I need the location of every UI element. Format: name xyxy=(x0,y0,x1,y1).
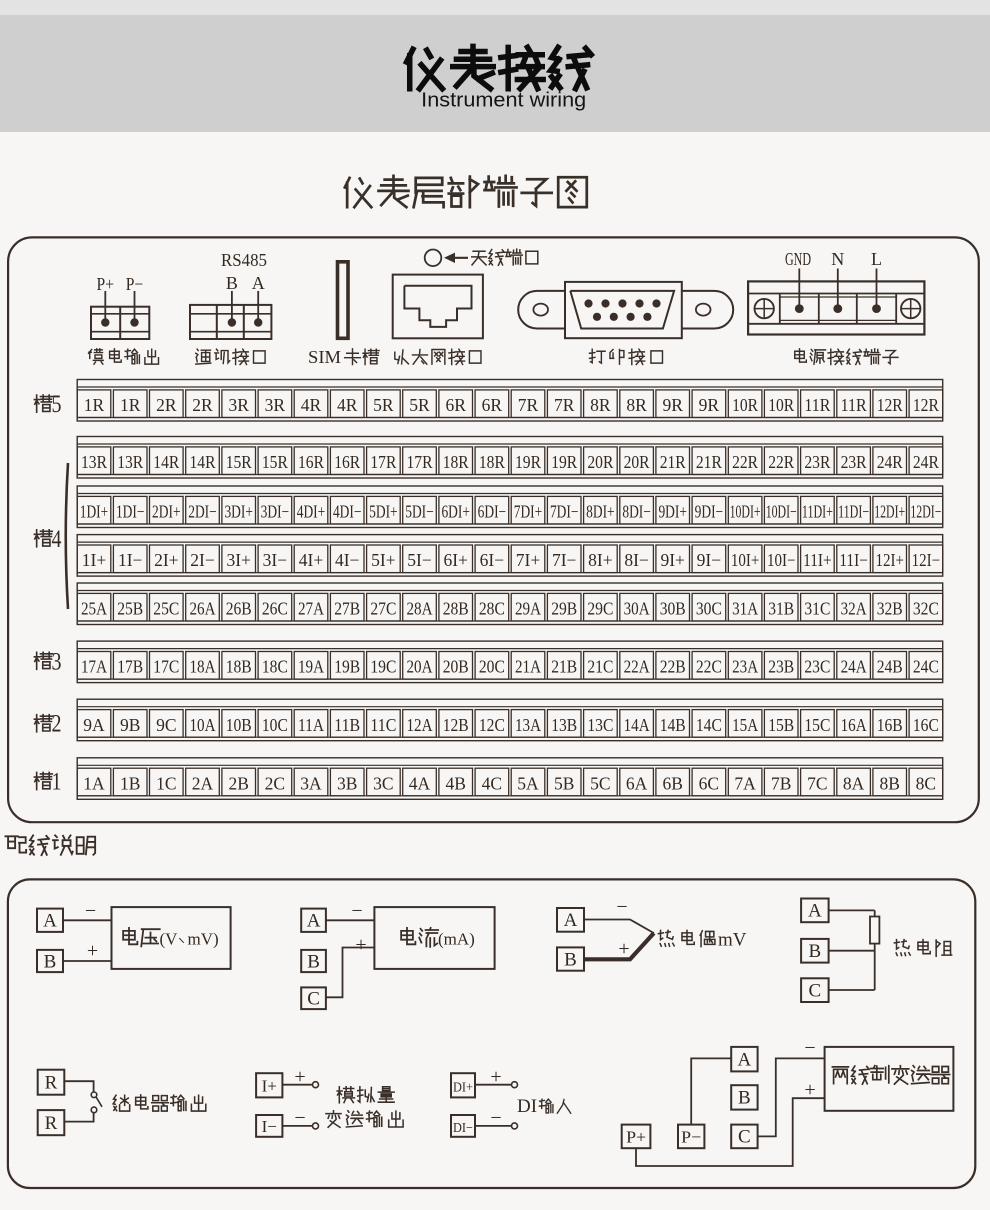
svg-text:9DI−: 9DI− xyxy=(695,502,724,522)
svg-text:23R: 23R xyxy=(804,452,830,472)
svg-text:20A: 20A xyxy=(407,657,433,677)
svg-text:3DI+: 3DI+ xyxy=(224,502,253,522)
svg-text:16A: 16A xyxy=(841,715,867,735)
svg-text:5R: 5R xyxy=(409,395,430,415)
svg-text:11DI−: 11DI− xyxy=(838,502,869,522)
svg-text:4DI+: 4DI+ xyxy=(297,502,326,522)
svg-text:23R: 23R xyxy=(841,452,867,472)
svg-text:P−: P− xyxy=(126,274,144,294)
svg-text:24A: 24A xyxy=(841,657,867,677)
svg-text:13R: 13R xyxy=(81,452,107,472)
svg-text:5: 5 xyxy=(52,391,62,418)
svg-text:17R: 17R xyxy=(370,452,396,472)
svg-text:−: − xyxy=(490,1107,501,1129)
svg-text:29C: 29C xyxy=(587,599,613,619)
svg-text:8C: 8C xyxy=(916,773,936,793)
svg-text:12DI+: 12DI+ xyxy=(874,502,905,522)
svg-text:14R: 14R xyxy=(153,452,179,472)
svg-text:1I+: 1I+ xyxy=(82,550,107,570)
svg-text:30C: 30C xyxy=(696,599,722,619)
svg-text:3I+: 3I+ xyxy=(226,550,251,570)
svg-text:10DI+: 10DI+ xyxy=(730,502,761,522)
svg-text:24C: 24C xyxy=(913,657,939,677)
svg-text:7I−: 7I− xyxy=(552,550,577,570)
svg-text:27A: 27A xyxy=(298,599,324,619)
svg-text:DI+: DI+ xyxy=(453,1081,473,1096)
svg-text:2DI−: 2DI− xyxy=(188,502,217,522)
svg-text:11I+: 11I+ xyxy=(803,550,832,570)
svg-text:(V: (V xyxy=(160,930,179,949)
svg-text:1R: 1R xyxy=(120,395,141,415)
svg-text:DI: DI xyxy=(517,1096,537,1117)
svg-text:7DI+: 7DI+ xyxy=(514,502,543,522)
svg-text:24B: 24B xyxy=(877,657,903,677)
svg-text:26A: 26A xyxy=(190,599,216,619)
svg-text:12I−: 12I− xyxy=(912,550,941,570)
svg-text:32C: 32C xyxy=(913,599,939,619)
svg-text:13B: 13B xyxy=(551,715,577,735)
svg-text:6DI−: 6DI− xyxy=(478,502,507,522)
svg-text:20R: 20R xyxy=(587,452,613,472)
svg-text:RS485: RS485 xyxy=(221,250,267,270)
svg-text:3R: 3R xyxy=(265,395,286,415)
svg-text:1DI+: 1DI+ xyxy=(80,502,109,522)
svg-text:25A: 25A xyxy=(81,599,107,619)
svg-text:32A: 32A xyxy=(841,599,867,619)
svg-text:31B: 31B xyxy=(768,599,794,619)
svg-text:9R: 9R xyxy=(699,395,720,415)
svg-text:11A: 11A xyxy=(298,715,324,735)
svg-text:3: 3 xyxy=(52,648,62,675)
svg-text:DI−: DI− xyxy=(453,1121,473,1136)
svg-text:19R: 19R xyxy=(551,452,577,472)
svg-text:27B: 27B xyxy=(334,599,360,619)
svg-text:22R: 22R xyxy=(732,452,758,472)
svg-text:3R: 3R xyxy=(228,395,249,415)
svg-text:15R: 15R xyxy=(262,452,288,472)
svg-text:6A: 6A xyxy=(626,773,648,793)
svg-text:8R: 8R xyxy=(590,395,611,415)
svg-text:24R: 24R xyxy=(877,452,903,472)
svg-text:6R: 6R xyxy=(482,395,503,415)
svg-text:N: N xyxy=(831,249,844,269)
svg-text:mV: mV xyxy=(718,930,747,951)
svg-text:5DI+: 5DI+ xyxy=(369,502,398,522)
svg-text:10R: 10R xyxy=(768,395,794,415)
svg-text:B: B xyxy=(738,1088,751,1109)
svg-text:6R: 6R xyxy=(445,395,466,415)
svg-text:22C: 22C xyxy=(696,657,722,677)
svg-text:19B: 19B xyxy=(334,657,360,677)
svg-text:25B: 25B xyxy=(117,599,143,619)
svg-text:2R: 2R xyxy=(156,395,177,415)
svg-text:16B: 16B xyxy=(877,715,903,735)
svg-text:17C: 17C xyxy=(153,657,179,677)
svg-text:5DI−: 5DI− xyxy=(405,502,434,522)
svg-text:20B: 20B xyxy=(443,657,469,677)
svg-text:Instrument wiring: Instrument wiring xyxy=(421,89,586,112)
svg-text:10I−: 10I− xyxy=(767,550,796,570)
svg-text:12I+: 12I+ xyxy=(875,550,904,570)
svg-text:21R: 21R xyxy=(696,452,722,472)
svg-text:21C: 21C xyxy=(587,657,613,677)
svg-text:9C: 9C xyxy=(156,715,176,735)
svg-text:(mA): (mA) xyxy=(438,930,475,949)
svg-text:B: B xyxy=(226,273,238,293)
svg-text:C: C xyxy=(809,980,822,1001)
svg-text:11R: 11R xyxy=(804,395,830,415)
svg-text:18A: 18A xyxy=(190,657,216,677)
svg-text:24R: 24R xyxy=(913,452,939,472)
svg-text:C: C xyxy=(738,1127,751,1148)
svg-text:11DI+: 11DI+ xyxy=(802,502,833,522)
svg-text:9I+: 9I+ xyxy=(660,550,685,570)
svg-text:12R: 12R xyxy=(877,395,903,415)
svg-text:8I−: 8I− xyxy=(624,550,649,570)
svg-text:8A: 8A xyxy=(843,773,865,793)
svg-text:+: + xyxy=(355,934,366,956)
svg-text:13C: 13C xyxy=(587,715,613,735)
svg-text:−: − xyxy=(804,1037,815,1059)
svg-text:B: B xyxy=(44,951,57,972)
svg-text:5I−: 5I− xyxy=(407,550,432,570)
svg-text:15A: 15A xyxy=(732,715,758,735)
svg-text:+: + xyxy=(618,938,629,960)
svg-text:6C: 6C xyxy=(699,773,719,793)
svg-text:23C: 23C xyxy=(804,657,830,677)
svg-text:8DI−: 8DI− xyxy=(622,502,651,522)
svg-text:27C: 27C xyxy=(370,599,396,619)
svg-text:C: C xyxy=(307,989,320,1010)
svg-text:18R: 18R xyxy=(479,452,505,472)
svg-text:I+: I+ xyxy=(262,1077,277,1096)
svg-text:17A: 17A xyxy=(81,657,107,677)
svg-text:4: 4 xyxy=(52,526,62,553)
svg-text:31A: 31A xyxy=(732,599,758,619)
svg-text:22B: 22B xyxy=(660,657,686,677)
svg-text:28A: 28A xyxy=(407,599,433,619)
svg-text:7A: 7A xyxy=(734,773,756,793)
svg-text:5I+: 5I+ xyxy=(371,550,396,570)
svg-text:21R: 21R xyxy=(660,452,686,472)
svg-text:4C: 4C xyxy=(482,773,502,793)
svg-text:9A: 9A xyxy=(83,715,105,735)
svg-text:4DI−: 4DI− xyxy=(333,502,362,522)
svg-text:2DI+: 2DI+ xyxy=(152,502,181,522)
svg-text:12A: 12A xyxy=(407,715,433,735)
svg-text:15C: 15C xyxy=(804,715,830,735)
svg-text:25C: 25C xyxy=(153,599,179,619)
svg-text:P+: P+ xyxy=(626,1128,646,1147)
svg-text:L: L xyxy=(871,249,882,269)
svg-text:11C: 11C xyxy=(370,715,396,735)
svg-text:18R: 18R xyxy=(443,452,469,472)
svg-text:7B: 7B xyxy=(771,773,791,793)
svg-text:15B: 15B xyxy=(768,715,794,735)
svg-text:16R: 16R xyxy=(334,452,360,472)
svg-text:12C: 12C xyxy=(479,715,505,735)
svg-text:32B: 32B xyxy=(877,599,903,619)
svg-text:1C: 1C xyxy=(156,773,176,793)
svg-text:22R: 22R xyxy=(768,452,794,472)
svg-text:30B: 30B xyxy=(660,599,686,619)
svg-text:3C: 3C xyxy=(373,773,393,793)
svg-text:1DI−: 1DI− xyxy=(116,502,145,522)
svg-text:12DI−: 12DI− xyxy=(910,502,941,522)
svg-text:29A: 29A xyxy=(515,599,541,619)
svg-text:16R: 16R xyxy=(298,452,324,472)
svg-text:26B: 26B xyxy=(226,599,252,619)
svg-text:+: + xyxy=(490,1066,501,1088)
svg-text:8I+: 8I+ xyxy=(588,550,613,570)
svg-text:7R: 7R xyxy=(518,395,539,415)
svg-text:30A: 30A xyxy=(624,599,650,619)
svg-text:B: B xyxy=(809,941,822,962)
svg-text:+: + xyxy=(87,940,98,962)
svg-text:21A: 21A xyxy=(515,657,541,677)
svg-text:2B: 2B xyxy=(228,773,248,793)
svg-text:−: − xyxy=(85,900,96,922)
svg-text:A: A xyxy=(252,273,265,293)
svg-text:11I−: 11I− xyxy=(839,550,868,570)
svg-text:8B: 8B xyxy=(879,773,899,793)
svg-text:23B: 23B xyxy=(768,657,794,677)
svg-text:6I+: 6I+ xyxy=(443,550,468,570)
svg-text:14B: 14B xyxy=(660,715,686,735)
svg-text:9DI+: 9DI+ xyxy=(658,502,687,522)
svg-text:12R: 12R xyxy=(913,395,939,415)
svg-text:4B: 4B xyxy=(445,773,465,793)
svg-text:2C: 2C xyxy=(265,773,285,793)
svg-text:13R: 13R xyxy=(117,452,143,472)
svg-text:11B: 11B xyxy=(334,715,360,735)
svg-text:6I−: 6I− xyxy=(480,550,505,570)
svg-text:14R: 14R xyxy=(190,452,216,472)
svg-text:3B: 3B xyxy=(337,773,357,793)
svg-text:29B: 29B xyxy=(551,599,577,619)
svg-text:6B: 6B xyxy=(662,773,682,793)
svg-text:I−: I− xyxy=(262,1117,277,1136)
svg-text:+: + xyxy=(804,1079,815,1101)
svg-text:17R: 17R xyxy=(407,452,433,472)
svg-text:14A: 14A xyxy=(624,715,650,735)
svg-text:22A: 22A xyxy=(624,657,650,677)
svg-text:3DI−: 3DI− xyxy=(261,502,290,522)
svg-text:A: A xyxy=(808,901,822,922)
svg-text:A: A xyxy=(564,910,578,931)
svg-text:19C: 19C xyxy=(370,657,396,677)
svg-text:R: R xyxy=(45,1113,58,1134)
svg-text:9R: 9R xyxy=(662,395,683,415)
svg-text:5B: 5B xyxy=(554,773,574,793)
svg-text:1A: 1A xyxy=(83,773,105,793)
svg-text:2I−: 2I− xyxy=(190,550,215,570)
svg-text:23A: 23A xyxy=(732,657,758,677)
svg-text:1R: 1R xyxy=(84,395,105,415)
svg-text:7DI−: 7DI− xyxy=(550,502,579,522)
svg-text:5C: 5C xyxy=(590,773,610,793)
svg-text:A: A xyxy=(43,911,57,932)
svg-text:10I+: 10I+ xyxy=(731,550,760,570)
svg-text:4A: 4A xyxy=(409,773,431,793)
svg-text:10R: 10R xyxy=(732,395,758,415)
svg-text:1I−: 1I− xyxy=(118,550,143,570)
svg-text:GND: GND xyxy=(785,249,811,269)
svg-text:B: B xyxy=(564,949,577,970)
svg-text:10B: 10B xyxy=(226,715,252,735)
svg-text:19R: 19R xyxy=(515,452,541,472)
svg-text:28B: 28B xyxy=(443,599,469,619)
svg-text:11R: 11R xyxy=(841,395,867,415)
svg-text:16C: 16C xyxy=(913,715,939,735)
svg-text:18B: 18B xyxy=(226,657,252,677)
svg-text:4R: 4R xyxy=(301,395,322,415)
svg-text:26C: 26C xyxy=(262,599,288,619)
svg-text:6DI+: 6DI+ xyxy=(441,502,470,522)
svg-text:mV): mV) xyxy=(188,930,219,949)
svg-text:8DI+: 8DI+ xyxy=(586,502,615,522)
svg-text:7I+: 7I+ xyxy=(516,550,541,570)
svg-text:28C: 28C xyxy=(479,599,505,619)
svg-text:1: 1 xyxy=(52,769,62,796)
svg-text:4I−: 4I− xyxy=(335,550,360,570)
svg-text:7R: 7R xyxy=(554,395,575,415)
svg-text:10DI−: 10DI− xyxy=(766,502,797,522)
svg-text:2I+: 2I+ xyxy=(154,550,179,570)
svg-text:13A: 13A xyxy=(515,715,541,735)
svg-text:P−: P− xyxy=(681,1128,701,1147)
svg-text:4I+: 4I+ xyxy=(299,550,324,570)
svg-text:SIM: SIM xyxy=(308,347,341,367)
svg-text:12B: 12B xyxy=(443,715,469,735)
svg-text:20R: 20R xyxy=(624,452,650,472)
svg-text:5R: 5R xyxy=(373,395,394,415)
svg-text:19A: 19A xyxy=(298,657,324,677)
svg-text:R: R xyxy=(45,1073,58,1094)
svg-text:4R: 4R xyxy=(337,395,358,415)
svg-text:31C: 31C xyxy=(804,599,830,619)
svg-text:9I−: 9I− xyxy=(697,550,722,570)
svg-text:3I−: 3I− xyxy=(263,550,288,570)
svg-text:20C: 20C xyxy=(479,657,505,677)
svg-text:A: A xyxy=(738,1050,752,1071)
svg-text:A: A xyxy=(307,911,321,932)
svg-text:10C: 10C xyxy=(262,715,288,735)
svg-text:−: − xyxy=(616,896,627,918)
svg-text:3A: 3A xyxy=(300,773,322,793)
svg-text:2R: 2R xyxy=(192,395,213,415)
svg-text:+: + xyxy=(294,1066,305,1088)
svg-text:15R: 15R xyxy=(226,452,252,472)
svg-text:2A: 2A xyxy=(192,773,214,793)
svg-text:−: − xyxy=(351,900,362,922)
svg-text:9B: 9B xyxy=(120,715,140,735)
svg-text:17B: 17B xyxy=(117,657,143,677)
svg-text:14C: 14C xyxy=(696,715,722,735)
svg-text:P+: P+ xyxy=(97,274,115,294)
svg-text:18C: 18C xyxy=(262,657,288,677)
svg-text:21B: 21B xyxy=(551,657,577,677)
svg-text:8R: 8R xyxy=(626,395,647,415)
svg-text:10A: 10A xyxy=(190,715,216,735)
svg-text:5A: 5A xyxy=(517,773,539,793)
svg-text:1B: 1B xyxy=(120,773,140,793)
svg-text:2: 2 xyxy=(52,711,62,738)
svg-text:−: − xyxy=(294,1107,305,1129)
svg-text:7C: 7C xyxy=(807,773,827,793)
svg-text:B: B xyxy=(307,951,320,972)
